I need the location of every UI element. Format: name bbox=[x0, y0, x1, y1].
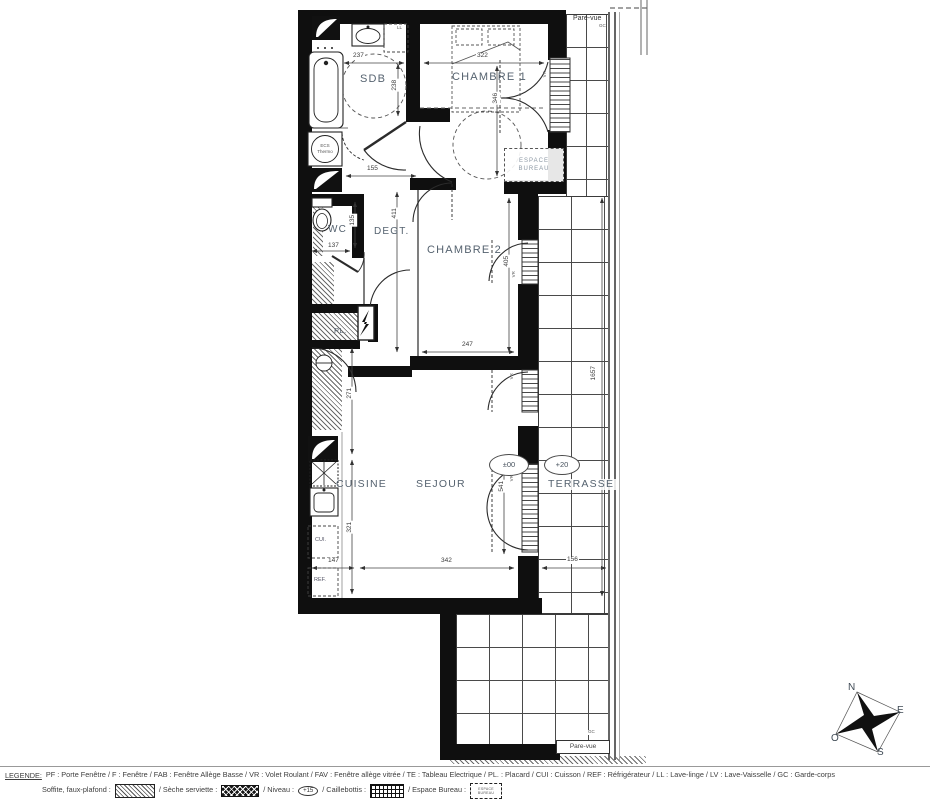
dim-322: 322 bbox=[476, 53, 489, 60]
legend-title: LEGENDE: bbox=[5, 771, 42, 780]
lave-linge-label: LL bbox=[397, 26, 402, 31]
dim-237: 237 bbox=[352, 53, 365, 60]
espace-bureau-line1: ESPACE bbox=[519, 157, 549, 165]
level-terrasse-value: +20 bbox=[556, 461, 569, 469]
vr-tag-chambre1: VR bbox=[543, 71, 548, 77]
seche-serviette-swatch bbox=[221, 785, 259, 797]
niveau-swatch: +15 bbox=[298, 786, 318, 796]
dim-346: 346 bbox=[493, 92, 500, 105]
compass-icon bbox=[836, 692, 900, 752]
espace-bureau-line2: BUREAU bbox=[518, 165, 549, 173]
room-label-wc: WC bbox=[328, 225, 347, 235]
legend: LEGENDE: PF : Porte Fenêtre / F : Fenêtr… bbox=[0, 766, 930, 799]
dim-271: 271 bbox=[347, 387, 354, 400]
vr-tag-sejour1: VR bbox=[510, 373, 515, 379]
compass-east: E bbox=[897, 705, 904, 716]
dim-155: 155 bbox=[366, 166, 379, 173]
room-label-placard: PL. bbox=[334, 327, 347, 335]
dim-1657: 1657 bbox=[591, 365, 598, 381]
floor-plan: SDB CHAMBRE 1 WC DEGT. CHAMBRE 2 CUISINE… bbox=[0, 0, 930, 800]
pare-vue-label-top: Pare-vue bbox=[573, 15, 601, 22]
dim-156: 156 bbox=[566, 557, 579, 564]
level-terrasse: +20 bbox=[544, 455, 580, 475]
compass-north: N bbox=[848, 682, 855, 693]
compass-south: S bbox=[877, 747, 884, 758]
room-label-chambre1: CHAMBRE 1 bbox=[452, 72, 527, 83]
ecs-line2: Thermo bbox=[308, 149, 342, 155]
dim-135: 135 bbox=[350, 214, 357, 227]
room-label-sdb: SDB bbox=[360, 74, 386, 85]
soffite-swatch bbox=[115, 784, 155, 798]
refrigerateur-label: REF. bbox=[314, 578, 326, 584]
room-label-sejour: SEJOUR bbox=[416, 479, 466, 490]
pare-vue-label-bottom: Pare-vue bbox=[556, 740, 610, 754]
legend-niveau-label: / Niveau : bbox=[263, 785, 294, 796]
dim-411: 411 bbox=[392, 207, 399, 219]
dim-405: 405 bbox=[504, 255, 511, 268]
room-label-degt: DEGT. bbox=[374, 227, 409, 237]
room-label-terrasse: TERRASSE bbox=[546, 479, 616, 490]
ecs-label: ECS Thermo bbox=[308, 143, 342, 155]
caillebottis-swatch bbox=[370, 784, 404, 798]
espace-bureau-swatch: ESPACE BUREAU bbox=[470, 783, 502, 799]
dim-321: 321 bbox=[347, 521, 354, 534]
espace-bureau-box: ESPACE BUREAU bbox=[504, 148, 564, 182]
pare-vue-bottom-text: Pare-vue bbox=[570, 744, 596, 751]
dim-137: 137 bbox=[327, 243, 340, 250]
level-sejour-value: ±00 bbox=[503, 461, 515, 469]
cuisson-label: CUI. bbox=[315, 538, 326, 544]
dim-238: 238 bbox=[392, 79, 399, 92]
vr-tag-chambre2: VR bbox=[512, 271, 517, 277]
legend-caillebottis-label: / Caillebottis : bbox=[322, 785, 366, 796]
plan-linework bbox=[0, 0, 930, 800]
dim-342: 342 bbox=[440, 558, 453, 565]
legend-line1: PF : Porte Fenêtre / F : Fenêtre / FAB :… bbox=[46, 770, 835, 781]
gc-label-top: GC bbox=[599, 24, 606, 29]
gc-label-bottom: GC bbox=[587, 730, 596, 735]
pare-vue-lines bbox=[608, 0, 650, 760]
dim-541: 541 bbox=[499, 480, 506, 493]
vr-tag-sejour2: VR bbox=[510, 475, 515, 481]
room-label-chambre2: CHAMBRE 2 bbox=[427, 245, 502, 256]
level-sejour: ±00 bbox=[489, 454, 529, 476]
legend-seche-label: / Sèche serviette : bbox=[159, 785, 217, 796]
dim-247: 247 bbox=[461, 342, 474, 349]
dim-147: 147 bbox=[327, 558, 340, 565]
compass-west: O bbox=[831, 733, 839, 744]
room-label-cuisine: CUISINE bbox=[336, 479, 387, 490]
legend-espace-bureau-label: / Espace Bureau : bbox=[408, 785, 466, 796]
legend-soffite-label: Soffite, faux-plafond : bbox=[42, 785, 111, 796]
